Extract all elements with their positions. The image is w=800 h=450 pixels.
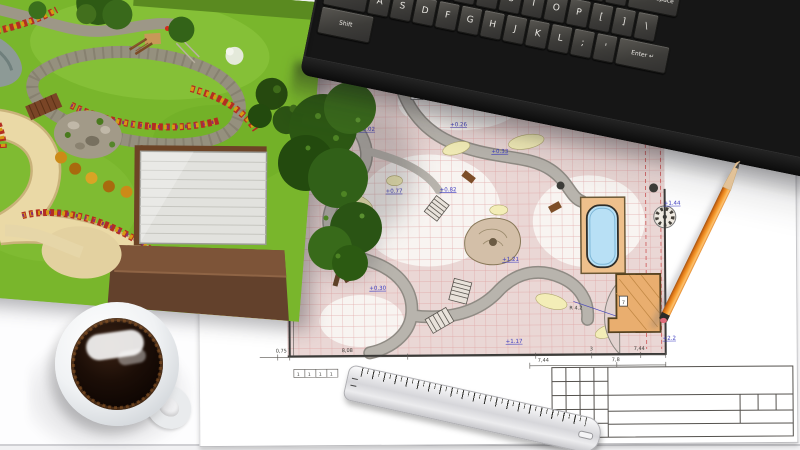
radius-label: R 4.2 — [569, 305, 582, 311]
dimension-label: 3 — [590, 346, 593, 352]
dimension-label: 8,08 — [342, 348, 353, 354]
svg-text:+0.82: +0.82 — [440, 187, 457, 193]
key-\: \ — [633, 11, 660, 43]
dimension-label: 0,75 — [276, 348, 287, 354]
room-number: 7 — [622, 300, 625, 306]
dimension-label: 1 — [308, 372, 311, 378]
dimension-label: 7,44 — [538, 358, 549, 364]
dimension-label: 1 — [330, 372, 333, 378]
tree-shadow — [312, 228, 378, 280]
svg-text:+0.30: +0.30 — [369, 286, 386, 292]
svg-text:+1.21: +1.21 — [502, 257, 519, 263]
dimension-label: 7,8 — [612, 357, 620, 363]
ruler-end-mark — [350, 378, 358, 387]
dimension-label: 7,44 — [634, 346, 645, 352]
building-footprint: 7 — [608, 274, 660, 332]
garden-3d-render — [0, 0, 324, 322]
desk-scene: R 4.2 7 — [0, 0, 800, 450]
key-enter-↵: Enter ↵ — [614, 36, 671, 74]
ruler-slot — [578, 430, 594, 440]
svg-text:+2.2: +2.2 — [663, 336, 676, 342]
svg-text:+1.17: +1.17 — [506, 339, 523, 345]
dimension-label: 1 — [319, 372, 322, 378]
dimension-label: 1 — [297, 372, 300, 378]
greenhouse — [134, 145, 267, 246]
